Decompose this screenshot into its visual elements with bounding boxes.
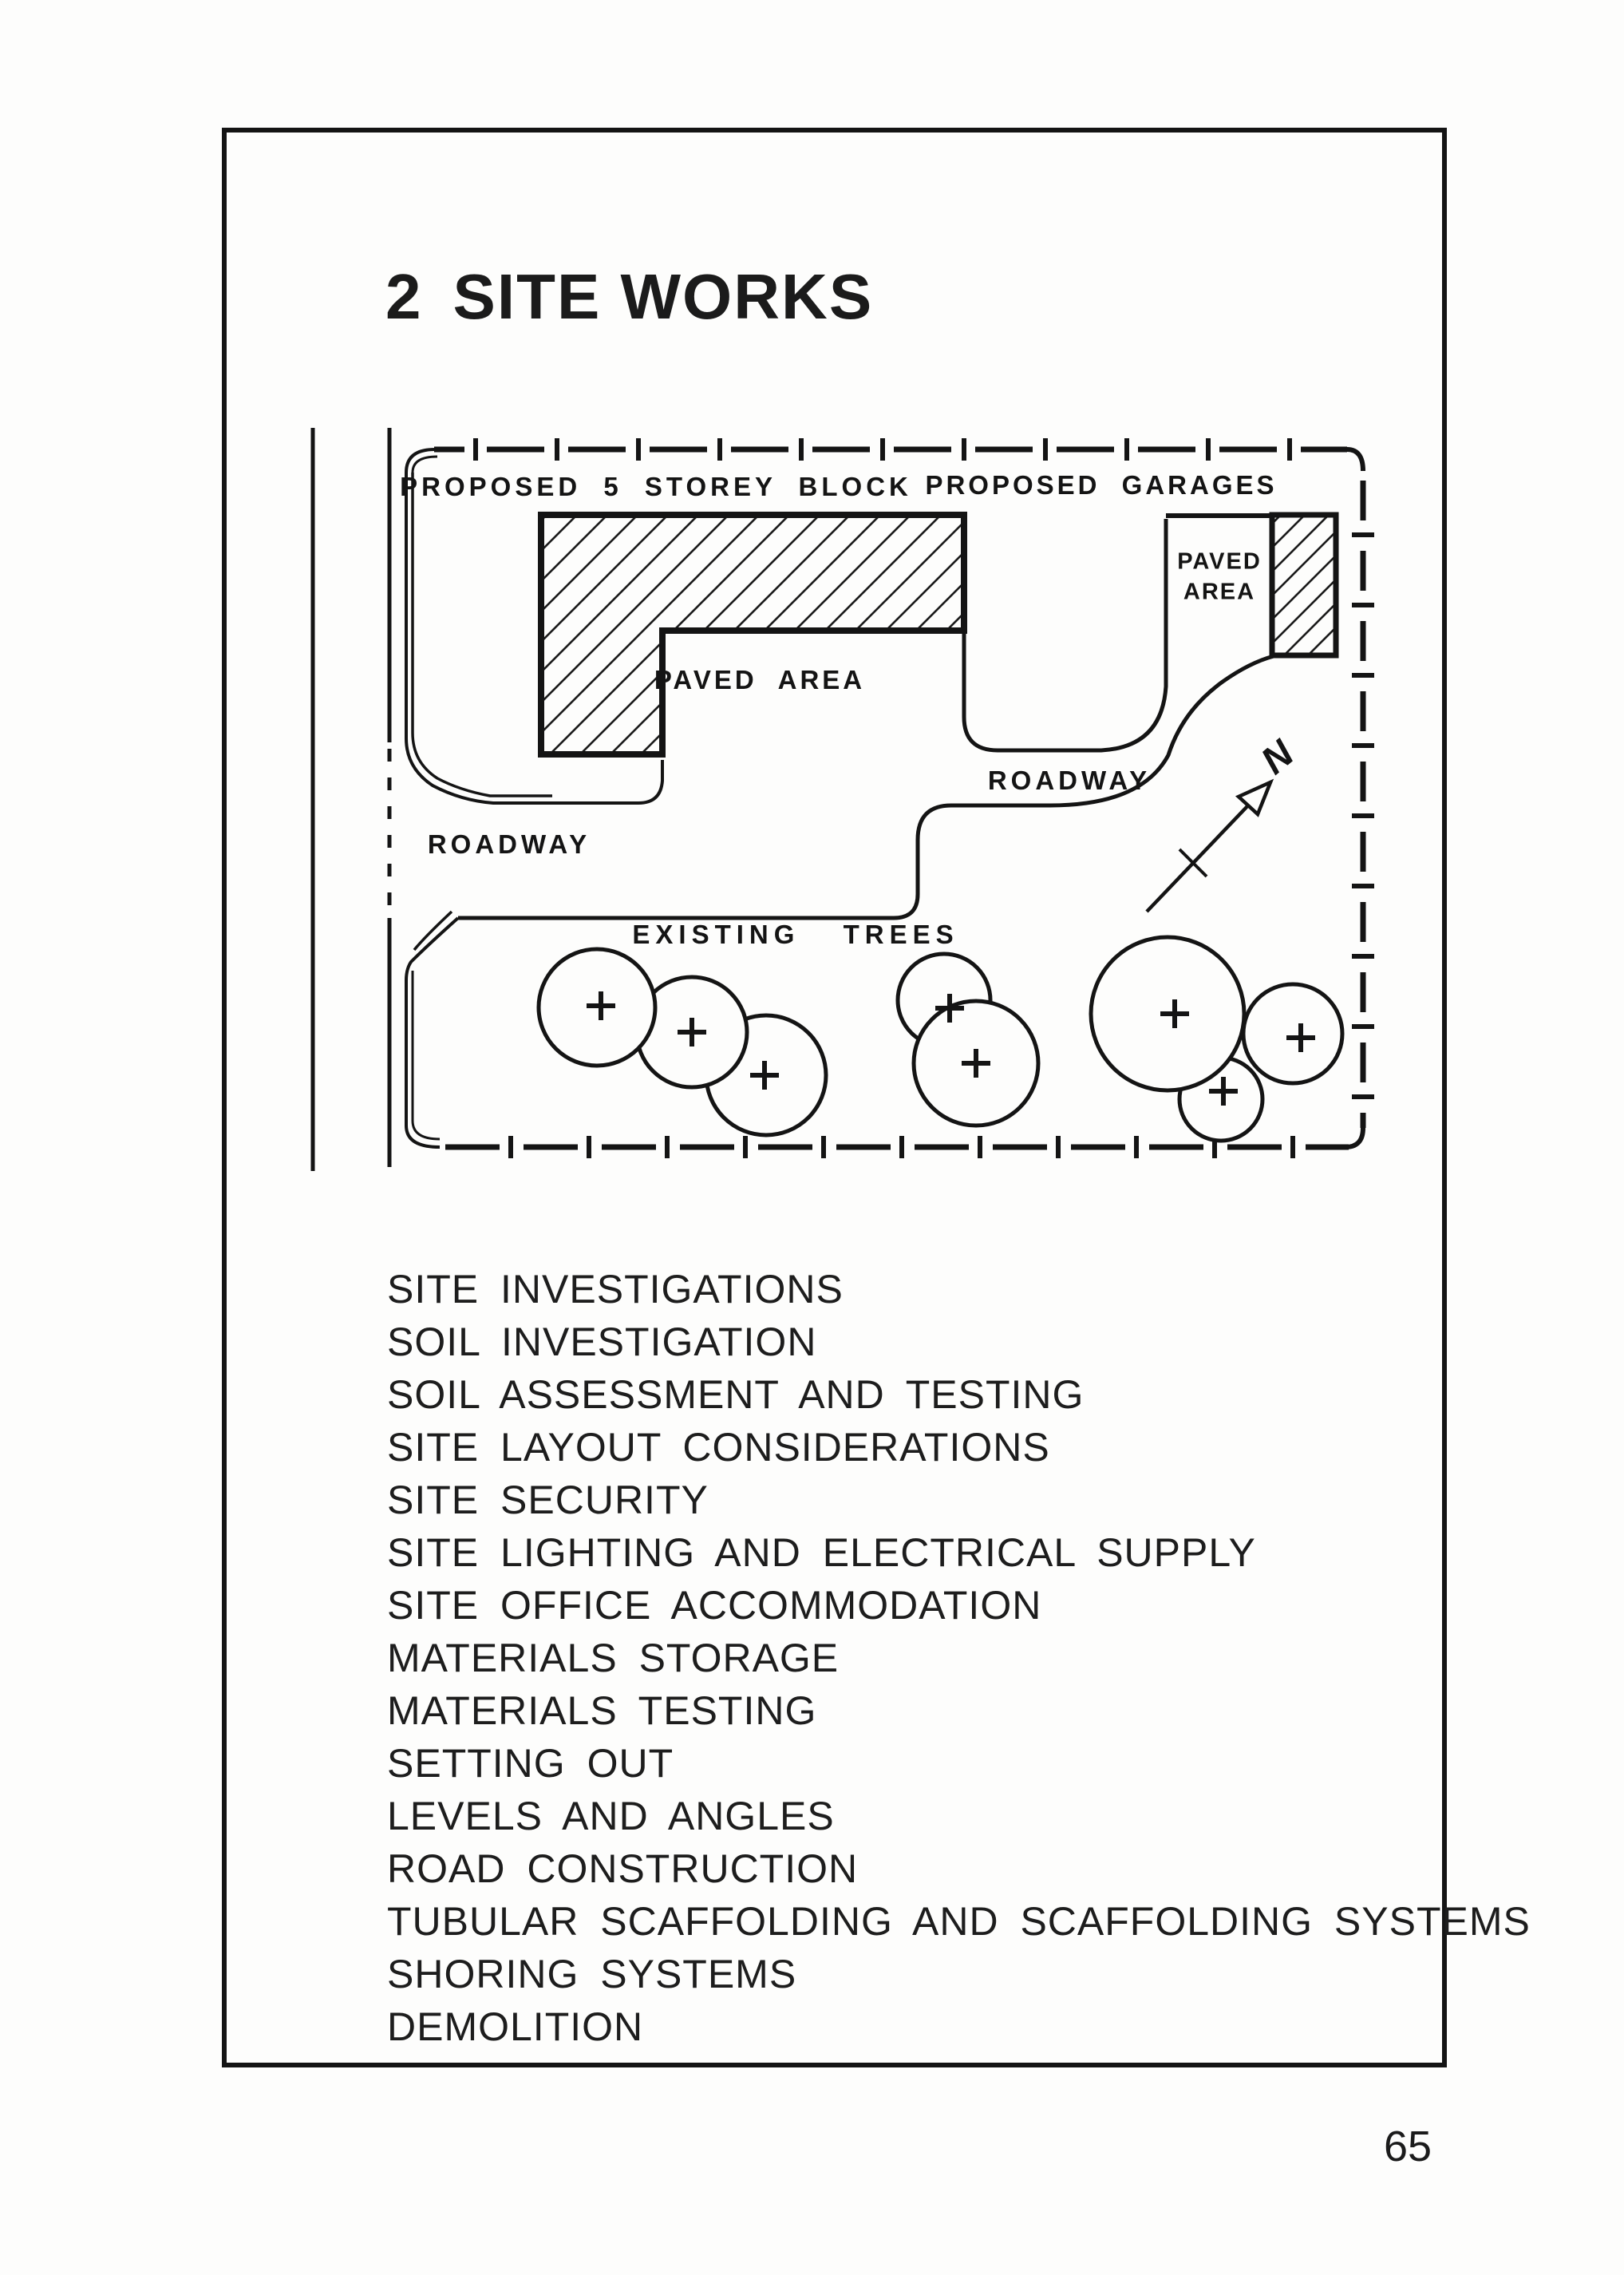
label-proposed-garages: PROPOSED GARAGES xyxy=(925,470,1277,500)
topic-item: LEVELS AND ANGLES xyxy=(387,1790,1531,1842)
topic-item: SITE LIGHTING AND ELECTRICAL SUPPLY xyxy=(387,1526,1531,1579)
topic-item: SOIL INVESTIGATION xyxy=(387,1316,1531,1368)
label-existing-trees: EXISTING TREES xyxy=(632,920,958,950)
tree-group-2 xyxy=(898,954,1038,1126)
topic-list: SITE INVESTIGATIONS SOIL INVESTIGATION S… xyxy=(387,1263,1531,2053)
topic-item: SITE SECURITY xyxy=(387,1474,1531,1526)
label-paved-area-main: PAVED AREA xyxy=(654,665,865,695)
topic-item: SITE OFFICE ACCOMMODATION xyxy=(387,1579,1531,1632)
topic-item: ROAD CONSTRUCTION xyxy=(387,1842,1531,1895)
topic-item: SHORING SYSTEMS xyxy=(387,1948,1531,2000)
proposed-garages-outline xyxy=(1272,515,1336,655)
label-paved-area-court-line1: PAVED xyxy=(1177,549,1262,576)
proposed-block-outline xyxy=(541,515,964,754)
topic-item: SETTING OUT xyxy=(387,1737,1531,1790)
topic-item: MATERIALS TESTING xyxy=(387,1684,1531,1737)
topic-item: DEMOLITION xyxy=(387,2000,1531,2053)
label-paved-area-court-line2: AREA xyxy=(1183,580,1255,606)
topic-item: SITE INVESTIGATIONS xyxy=(387,1263,1531,1316)
book-page: 2SITE WORKS xyxy=(0,0,1624,2275)
left-roadway-kerbs xyxy=(313,428,389,1171)
topic-item: SITE LAYOUT CONSIDERATIONS xyxy=(387,1421,1531,1474)
tree-group-1 xyxy=(539,949,826,1135)
topic-item: SOIL ASSESSMENT AND TESTING xyxy=(387,1368,1531,1421)
topic-item: MATERIALS STORAGE xyxy=(387,1632,1531,1684)
north-arrow xyxy=(1147,782,1270,912)
page-number: 65 xyxy=(1368,2122,1448,2171)
label-roadway-left: ROADWAY xyxy=(428,829,591,860)
label-roadway-right: ROADWAY xyxy=(988,766,1151,796)
topic-item: TUBULAR SCAFFOLDING AND SCAFFOLDING SYST… xyxy=(387,1895,1531,1948)
label-proposed-block: PROPOSED 5 STOREY BLOCK xyxy=(400,472,912,502)
